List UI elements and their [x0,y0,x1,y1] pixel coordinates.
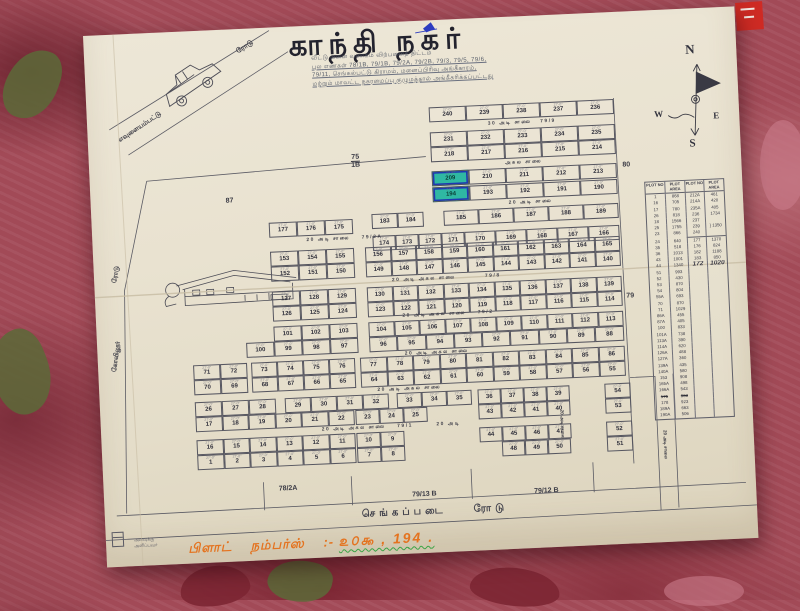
table-cell: 506 [675,411,695,418]
plot-9: 27'-0"9 [380,431,405,447]
plot-90: 27'-0"90 [539,328,568,344]
plot-80: 27'-0"80 [439,353,466,369]
plot-34: 27'-0"34 [421,391,447,407]
plot-5: 27'-0"5 [303,449,330,465]
plot-108: 27'-0"108 [470,317,496,333]
survey-label: 87 [225,197,233,204]
plot-148: 27'-0"148 [391,260,417,276]
plot-156: 27'-0"156 [365,246,391,262]
plot-152: 27'-0"152 [271,265,300,281]
plot-137: 27'-0"137 [545,278,571,294]
plot-142: 27'-0"142 [544,253,570,269]
plot-97: 27'-0"97 [330,338,359,354]
plot-189: 27'-0"189 [583,203,619,220]
plot-184: 27'-0"184 [397,212,424,228]
plot-row: 27'-0"52 [606,420,633,436]
plot-187: 27'-0"187 [513,206,549,223]
plot-162: 27'-0"162 [518,239,544,255]
table-header-cell: PLOT NO [684,180,704,193]
photo-of-plot-map: { "title": "காந்தி நகர்", "subtitle_line… [0,0,800,600]
plot-8: 27'-0"8 [381,446,406,462]
plot-row: 27'-0"53 [605,398,632,414]
plot-56: 27'-0"56 [572,362,599,378]
plot-58: 27'-0"58 [519,364,546,380]
survey-label: ரோடு [111,266,122,284]
plot-185: 27'-0"185 [443,209,479,226]
plot-32: 27'-0"32 [363,394,390,410]
fabric-flower-motif [664,576,744,606]
plot-128: 27'-0"128 [300,289,329,305]
plot-76: 27'-0"76 [329,358,356,374]
plot-62: 27'-0"62 [414,369,441,385]
fabric-flower-motif [178,561,253,610]
plot-84: 27'-0"84 [545,348,572,364]
plot-45: 27'-0"45 [502,425,526,441]
plot-23: 27'-0"23 [355,409,380,425]
plot-20: 27'-0"20 [275,412,302,428]
plot-91: 27'-0"91 [510,330,539,346]
plot-154: 27'-0"154 [298,249,327,265]
plot-151: 27'-0"151 [299,264,328,280]
plot-111: 27'-0"111 [547,313,573,329]
plot-216: 27'-0"216 [504,142,542,159]
plot-row: 27'-0"54 [604,383,631,399]
survey-label: எவுளையம்பட்டு [117,110,163,144]
survey-label: கோவிலூர் [111,341,123,373]
survey-label: 751B [351,154,361,169]
plot-77: 27'-0"77 [360,357,387,373]
plot-12: 27'-0"12 [302,434,329,450]
plot-215: 27'-0"215 [541,141,579,158]
plot-146: 27'-0"146 [442,258,468,274]
plot-240: 27'-0"240 [429,106,467,123]
plot-106: 27'-0"106 [419,319,445,335]
plot-159: 27'-0"159 [441,243,467,259]
plot-134: 27'-0"134 [469,282,495,298]
plot-81: 27'-0"81 [466,352,493,368]
plot-31: 27'-0"31 [337,395,364,411]
plot-186: 27'-0"186 [478,208,514,225]
plot-193: 27'-0"193 [469,184,507,201]
plot-69: 27'-0"69 [221,378,249,394]
plot-44: 27'-0"44 [479,426,503,442]
survey-label: 79/13 B [412,490,437,498]
plot-239: 27'-0"239 [466,104,504,121]
plot-14: 27'-0"14 [249,437,276,453]
plot-73: 27'-0"73 [251,362,278,378]
plot-43: 27'-0"43 [478,403,502,419]
plot-238: 27'-0"238 [503,102,541,119]
plot-35: 27'-0"35 [446,390,472,406]
plot-164: 27'-0"164 [569,237,595,253]
plot-98: 27'-0"98 [302,339,331,355]
plot-217: 27'-0"217 [467,144,505,161]
survey-label: 78/2A [279,485,298,493]
footer-printed-line: அளிப்பவர் [134,542,158,549]
plot-209: 27'-0"209 [431,170,469,187]
survey-label: 79 [626,292,634,299]
plot-234: 27'-0"234 [541,126,579,143]
fabric-leaf-motif [0,322,64,422]
plot-160: 27'-0"160 [467,242,493,258]
plot-7: 27'-0"7 [357,447,382,463]
plot-144: 27'-0"144 [493,255,519,271]
fabric-leaf-motif [0,42,68,127]
plot-row: 27'-0"727'-0"8 [357,446,406,463]
plot-17: 27'-0"17 [195,416,222,432]
plot-132: 27'-0"132 [418,284,444,300]
survey-label: 80 [622,161,630,168]
plot-37: 27'-0"37 [500,387,524,403]
plot-42: 27'-0"42 [501,402,525,418]
plot-194: 27'-0"194 [432,186,470,203]
footer-printed-text: அளவுக்குஅளிப்பவர் [134,536,158,548]
plot-18: 27'-0"18 [222,415,249,431]
plot-218: 27'-0"218 [430,146,468,163]
plot-54: 27'-0"54 [604,383,631,399]
handwritten-plot-numbers: ௨௦௯ , 194 . [338,529,434,549]
plot-158: 27'-0"158 [416,244,442,260]
plot-129: 27'-0"129 [328,288,357,304]
plot-16: 27'-0"16 [196,439,223,455]
plot-155: 27'-0"155 [326,248,355,264]
plot-27: 27'-0"27 [222,400,250,416]
plot-233: 27'-0"233 [504,127,542,144]
plot-110: 27'-0"110 [521,314,547,330]
plot-113: 27'-0"113 [598,311,624,327]
plot-237: 27'-0"237 [539,101,577,118]
plot-46: 27'-0"46 [525,424,549,440]
plot-140: 27'-0"140 [595,251,621,267]
plot-107: 27'-0"107 [445,318,471,334]
fabric-flower-motif [760,120,800,210]
plot-row: 27'-0"18327'-0"184 [371,212,424,229]
plot-78: 27'-0"78 [386,355,413,371]
plot-103: 27'-0"103 [329,323,358,339]
scale-box [112,532,125,548]
plot-101: 27'-0"101 [273,325,302,341]
plot-131: 27'-0"131 [392,285,418,301]
survey-label: ரோடு [235,38,255,56]
plot-235: 27'-0"235 [578,124,616,141]
plot-74: 27'-0"74 [277,360,304,376]
plot-29: 27'-0"29 [285,397,312,413]
plot-24: 27'-0"24 [379,408,404,424]
plot-4: 27'-0"4 [277,450,304,466]
survey-label: 20 அடி சாலை [661,430,668,459]
plot-3: 27'-0"3 [250,452,277,468]
plot-92: 27'-0"92 [482,331,511,347]
table-header-cell: PLOT AREA [703,179,724,192]
plot-71: 27'-0"71 [193,364,221,380]
plot-89: 27'-0"89 [567,327,596,343]
plot-10: 27'-0"10 [356,432,381,448]
plot-49: 27'-0"49 [525,439,549,455]
plot-141: 27'-0"141 [569,252,595,268]
plot-1: 27'-0"1 [197,454,224,470]
plot-55: 27'-0"55 [599,361,626,377]
plot-191: 27'-0"191 [543,181,581,198]
plot-68: 27'-0"68 [252,377,279,393]
plot-127: 27'-0"127 [272,290,301,306]
table-header-cell: PLOT NO [645,182,665,195]
plot-85: 27'-0"85 [572,347,599,363]
survey-label: 20 அடி சாலை [558,410,565,439]
plot-147: 27'-0"147 [417,259,443,275]
plot-177: 27'-0"177 [269,221,298,237]
plot-21: 27'-0"21 [301,411,328,427]
plot-36: 27'-0"36 [477,388,501,404]
plot-11: 27'-0"11 [329,433,356,449]
plot-86: 27'-0"86 [598,346,625,362]
fabric-red-patch [735,1,764,31]
plot-88: 27'-0"88 [595,326,624,342]
plot-96: 27'-0"96 [369,336,398,352]
plot-60: 27'-0"60 [466,367,493,383]
road-label: செங்கப்படை ரோடு [305,500,565,524]
table-header-cell: PLOT AREA [664,181,685,194]
plot-map-paper: காந்தி நகர் வீட்டு மனை வளாகம் விற்பனைத் … [83,6,758,567]
plot-75: 27'-0"75 [303,359,330,375]
table-cell [695,410,714,417]
plot-190: 27'-0"190 [580,179,618,196]
plot-192: 27'-0"192 [506,182,544,199]
table-cell [714,409,734,416]
plot-83: 27'-0"83 [519,349,546,365]
plot-15: 27'-0"15 [223,438,250,454]
survey-label: 79/12 B [534,487,559,495]
plot-82: 27'-0"82 [492,351,519,367]
plot-188: 27'-0"188 [548,204,584,221]
plot-row: 27'-0"3327'-0"3427'-0"35 [397,390,473,408]
plot-161: 27'-0"161 [492,240,518,256]
plot-163: 27'-0"163 [543,238,569,254]
plot-139: 27'-0"139 [596,276,622,292]
plot-94: 27'-0"94 [425,333,454,349]
plot-row: 27'-0"51 [607,435,634,451]
plot-row: 27'-0"4827'-0"4927'-0"50 [502,438,572,456]
plot-175: 27'-0"175 [325,219,354,235]
plot-102: 27'-0"102 [301,324,330,340]
plot-213: 27'-0"213 [579,163,617,180]
plot-176: 27'-0"176 [297,220,326,236]
plot-67: 27'-0"67 [278,375,305,391]
plot-19: 27'-0"19 [248,414,275,430]
plot-53: 27'-0"53 [605,398,632,414]
plot-135: 27'-0"135 [494,280,520,296]
plot-150: 27'-0"150 [327,263,356,279]
plot-39: 27'-0"39 [546,385,570,401]
plot-104: 27'-0"104 [368,321,394,337]
plot-41: 27'-0"41 [524,401,548,417]
plot-48: 27'-0"48 [502,440,526,456]
plot-72: 27'-0"72 [220,363,248,379]
plot-212: 27'-0"212 [542,165,580,182]
plot-52: 27'-0"52 [606,420,633,436]
plot-64: 27'-0"64 [361,372,388,388]
plot-61: 27'-0"61 [440,368,467,384]
plot-63: 27'-0"63 [387,370,414,386]
plot-143: 27'-0"143 [518,254,544,270]
plot-232: 27'-0"232 [467,129,505,146]
plot-65: 27'-0"65 [330,373,357,389]
plot-22: 27'-0"22 [328,410,355,426]
plot-6: 27'-0"6 [329,448,356,464]
plot-51: 27'-0"51 [607,435,634,451]
plot-231: 27'-0"231 [430,131,468,148]
plot-109: 27'-0"109 [496,315,522,331]
plot-79: 27'-0"79 [413,354,440,370]
plot-183: 27'-0"183 [371,213,398,229]
plot-214: 27'-0"214 [578,139,616,156]
plot-66: 27'-0"66 [304,374,331,390]
plot-99: 27'-0"99 [274,340,303,356]
plot-28: 27'-0"28 [249,399,277,415]
table-cell: 190A [656,412,675,419]
fabric-flower-motif [468,563,561,610]
plot-165: 27'-0"165 [594,236,620,252]
plot-145: 27'-0"145 [467,257,493,273]
plot-112: 27'-0"112 [572,312,598,328]
plot-105: 27'-0"105 [394,320,420,336]
plot-211: 27'-0"211 [505,166,543,183]
plot-157: 27'-0"157 [390,245,416,261]
plot-57: 27'-0"57 [546,363,573,379]
plot-38: 27'-0"38 [523,386,547,402]
plot-59: 27'-0"59 [493,366,520,382]
plot-70: 27'-0"70 [194,379,222,395]
plot-area-table: PLOT NOPLOT AREAPLOT NOPLOT AREA1868212A… [644,178,735,420]
plot-2: 27'-0"2 [224,453,251,469]
plot-93: 27'-0"93 [454,332,483,348]
plot-33: 27'-0"33 [397,392,423,408]
plot-13: 27'-0"13 [276,435,303,451]
fabric-leaf-motif [264,554,335,608]
plot-30: 27'-0"30 [311,396,338,412]
plot-95: 27'-0"95 [397,335,426,351]
plot-236: 27'-0"236 [576,99,614,116]
plot-136: 27'-0"136 [520,279,546,295]
plot-26: 27'-0"26 [195,401,223,417]
plot-133: 27'-0"133 [443,283,469,299]
plot-138: 27'-0"138 [570,277,596,293]
plot-25: 27'-0"25 [403,407,428,423]
plot-50: 27'-0"50 [548,438,572,454]
plot-149: 27'-0"149 [366,261,392,277]
plot-130: 27'-0"130 [367,286,393,302]
plot-100: 27'-0"100 [246,342,275,358]
plot-153: 27'-0"153 [270,250,299,266]
plot-210: 27'-0"210 [468,168,506,185]
